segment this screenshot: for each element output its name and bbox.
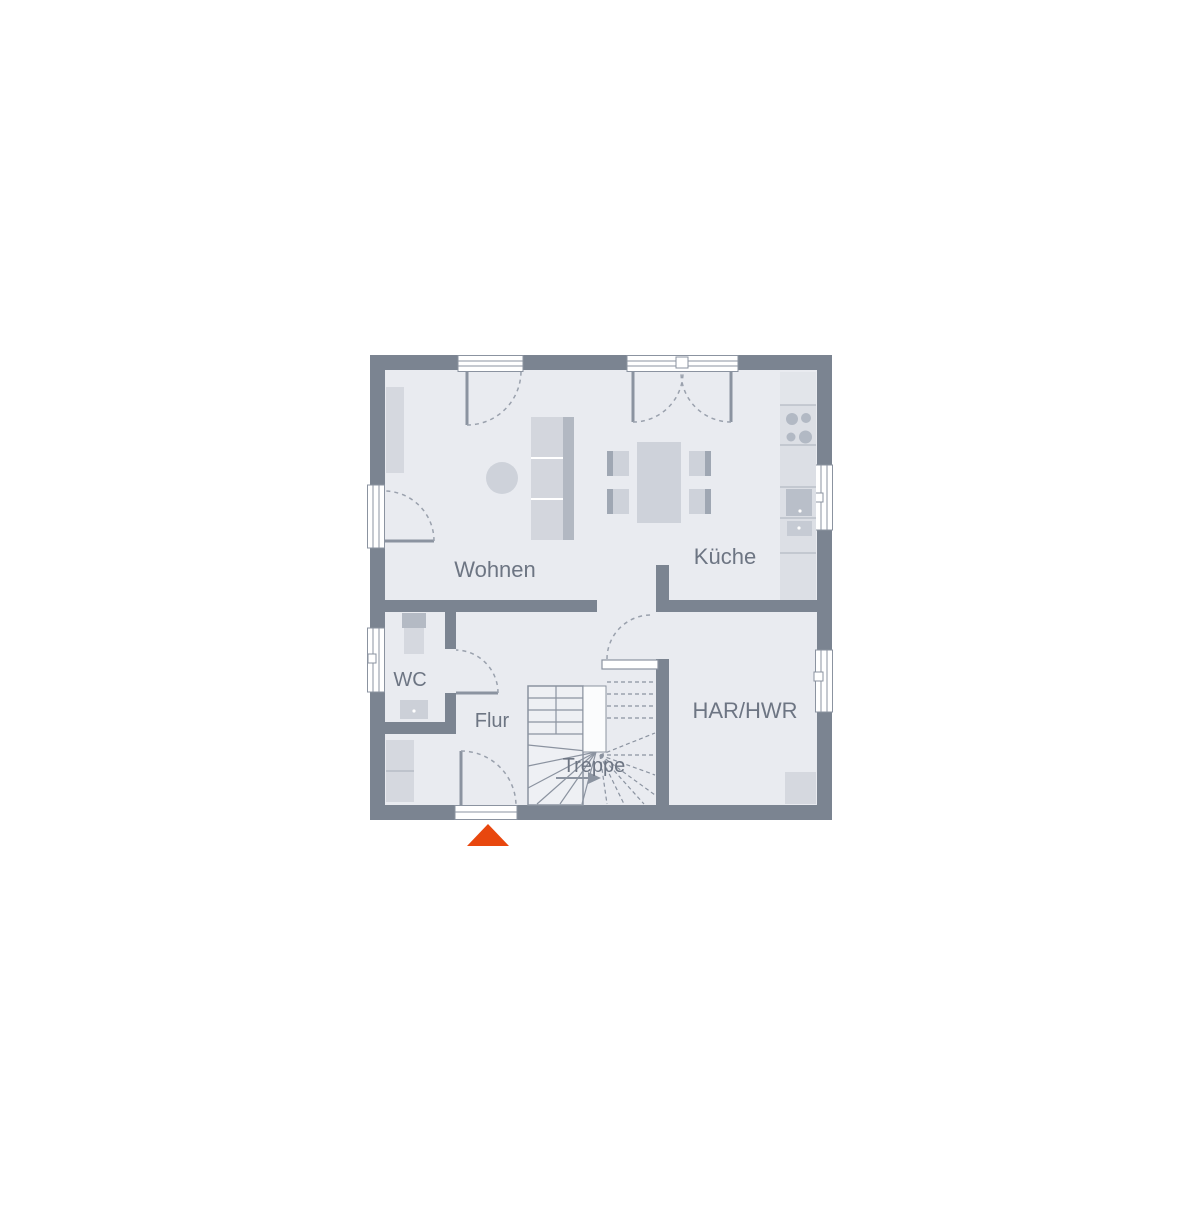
chair — [607, 489, 629, 514]
chair — [689, 489, 711, 514]
window-french-door-wohnen — [368, 485, 385, 548]
window-wc — [368, 628, 385, 692]
dining-table — [637, 442, 681, 523]
toilet-icon — [402, 613, 426, 654]
window-kueche — [814, 465, 833, 530]
stair-void — [583, 686, 606, 752]
wall-kueche-har — [656, 600, 817, 612]
room-label-wc: WC — [393, 669, 426, 691]
wardrobe-flur — [386, 740, 414, 802]
window-terrace-door-wohnen — [458, 356, 523, 372]
entrance-door-sill — [455, 806, 517, 820]
chair — [689, 451, 711, 476]
wall-stairs-har — [656, 659, 669, 805]
window-har-hwr — [814, 650, 833, 712]
room-label-har-hwr: HAR/HWR — [692, 698, 797, 723]
wall-stub-wohnen-kueche — [656, 565, 669, 612]
shelf-wohnen — [386, 387, 404, 473]
wall-wc-right-upper — [445, 600, 456, 649]
sofa — [531, 417, 574, 540]
wall-wc-bottom — [385, 722, 456, 734]
room-label-flur: Flur — [475, 710, 510, 732]
stair-handrail — [602, 660, 658, 669]
floor-plan-page: Wohnen Küche WC Flur Treppe HAR/HWR — [0, 0, 1200, 1200]
utility-unit-har — [785, 772, 816, 804]
room-label-treppe: Treppe — [563, 755, 626, 777]
entrance-arrow-icon — [467, 824, 509, 846]
shutter-box-icon — [676, 357, 688, 368]
room-label-wohnen: Wohnen — [454, 557, 536, 582]
wall-wohnen-flur — [385, 600, 597, 612]
chair — [607, 451, 629, 476]
coffee-table — [486, 462, 518, 494]
room-label-kueche: Küche — [694, 544, 756, 569]
window-double-door-kueche — [627, 356, 738, 372]
washbasin-icon — [400, 700, 428, 719]
kitchen-counter — [780, 372, 816, 600]
floor-plan: Wohnen Küche WC Flur Treppe HAR/HWR — [0, 0, 1200, 1200]
sink-icon — [786, 489, 812, 516]
dishwasher-icon — [787, 521, 812, 536]
